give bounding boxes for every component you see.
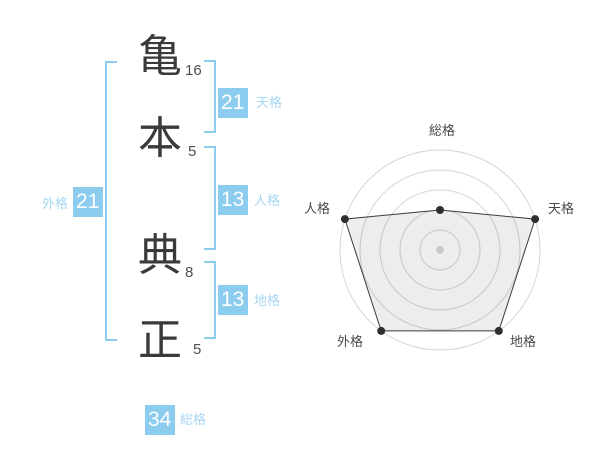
radar-axis-label: 人格 [304,201,330,216]
gaikaku-label: 外格 [42,197,68,211]
gaikaku-value-badge: 21 [73,187,103,217]
radar-chart-svg: 総格天格地格外格人格 [290,100,590,400]
radar-axis-label: 総格 [429,123,455,138]
jinkaku-bracket [204,146,216,250]
radar-data-polygon [345,210,535,331]
jinkaku-value-badge: 13 [218,185,248,215]
stroke-count-1: 16 [185,63,202,78]
radar-vertex-dot [341,215,349,223]
chikaku-bracket [204,261,216,339]
tenkaku-value-badge: 21 [218,88,248,118]
soukaku-label: 総格 [180,413,206,427]
stroke-count-3: 8 [185,265,193,280]
tenkaku-bracket [204,60,216,133]
radar-axis-label: 天格 [548,201,574,216]
name-analysis-panel: 亀 16 本 5 典 8 正 5 21 天格 13 人格 13 地格 外格 21… [0,0,600,470]
stroke-count-4: 5 [193,342,201,357]
radar-vertex-dot [495,327,503,335]
radar-vertex-dot [436,206,444,214]
name-character-3: 典 [138,234,182,278]
radar-axis-label: 外格 [337,334,363,349]
radar-vertex-dot [377,327,385,335]
jinkaku-label: 人格 [254,194,280,208]
name-character-2: 本 [138,117,182,161]
chikaku-label: 地格 [254,294,280,308]
tenkaku-label: 天格 [256,96,282,110]
radar-chart: 総格天格地格外格人格 [290,100,590,400]
name-character-4: 正 [138,319,182,363]
radar-center-dot [436,246,444,254]
radar-axis-label: 地格 [510,334,536,349]
gaikaku-bracket [105,61,117,341]
chikaku-value-badge: 13 [218,285,248,315]
soukaku-value-badge: 34 [145,405,175,435]
stroke-count-2: 5 [188,144,196,159]
name-character-1: 亀 [138,35,182,79]
radar-vertex-dot [531,215,539,223]
